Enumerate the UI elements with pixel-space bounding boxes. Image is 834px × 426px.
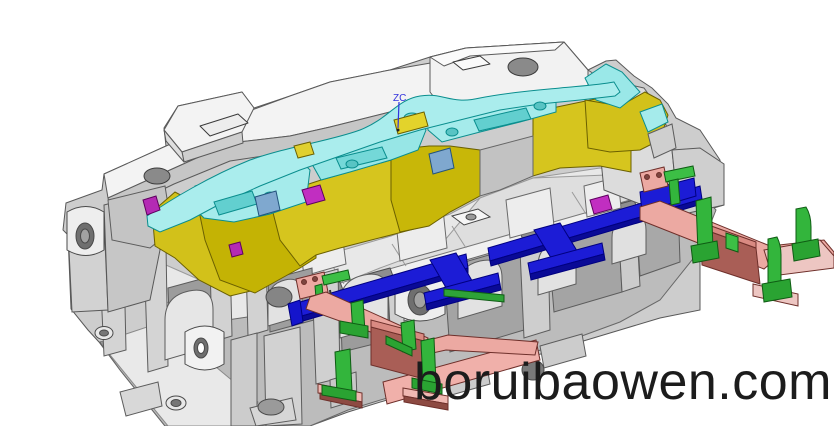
svg-text:boruibaowen.com: boruibaowen.com <box>414 353 832 411</box>
svg-text:ZC: ZC <box>393 93 406 104</box>
